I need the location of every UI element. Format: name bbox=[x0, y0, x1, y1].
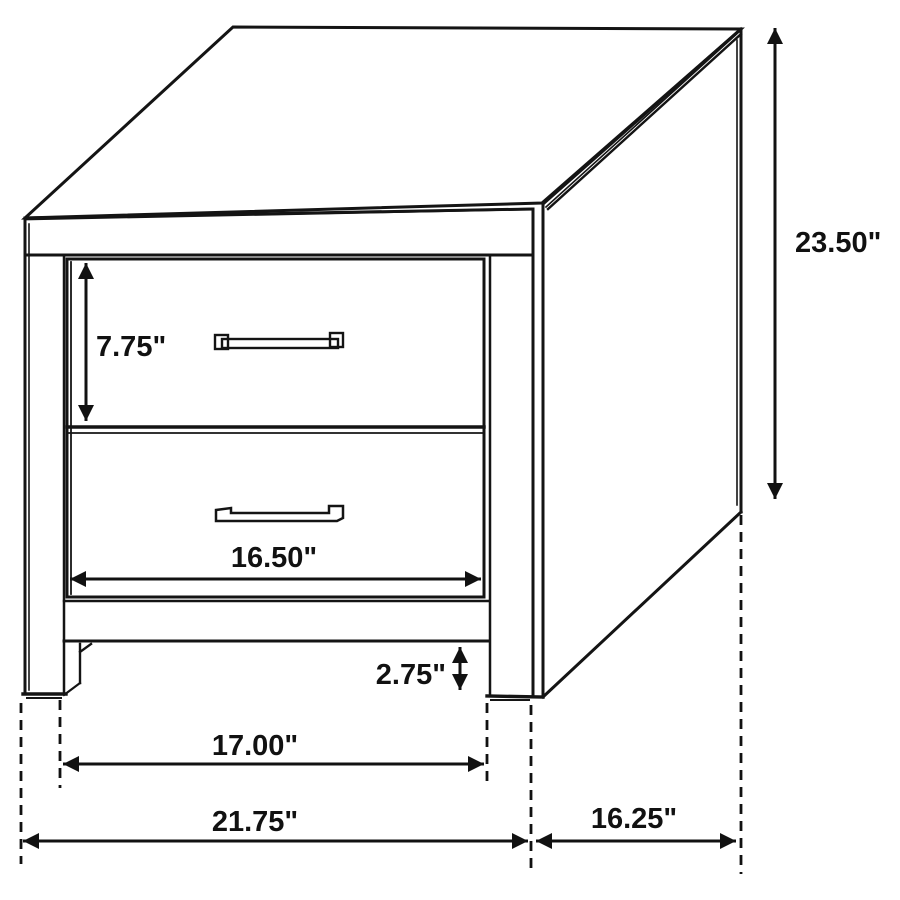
dimension-label-overall-height: 23.50" bbox=[795, 227, 881, 259]
dimension-label-drawer-height: 7.75" bbox=[96, 331, 166, 363]
dimension-label-leg-width: 17.00" bbox=[212, 730, 298, 762]
diagram-canvas: 23.50" 7.75" 16.50" 2.75" 17.00" 21.75" … bbox=[0, 0, 900, 900]
dimension-label-drawer-width: 16.50" bbox=[231, 542, 317, 574]
dimension-label-overall-depth: 16.25" bbox=[591, 803, 677, 835]
dimension-label-foot-height: 2.75" bbox=[376, 659, 446, 691]
dimension-label-overall-width: 21.75" bbox=[212, 806, 298, 838]
nightstand-dimension-diagram: 23.50" 7.75" 16.50" 2.75" 17.00" 21.75" … bbox=[0, 0, 900, 900]
right-leg-bottom bbox=[487, 696, 543, 697]
